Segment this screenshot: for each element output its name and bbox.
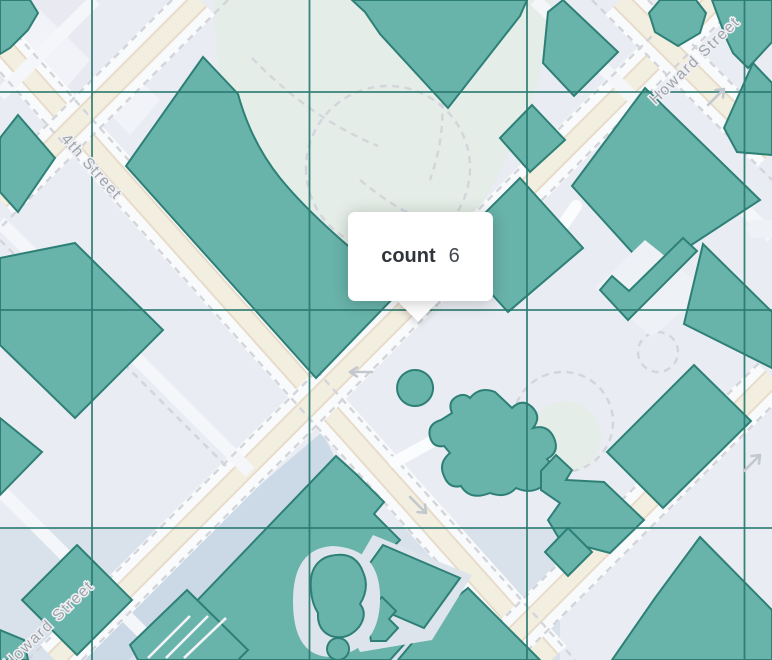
map-viewport[interactable]: 4th StreetHoward StreetHoward Street cou… [0, 0, 772, 660]
blob-bottom-circle[interactable] [327, 638, 349, 660]
tooltip-field-label: count [381, 245, 435, 268]
map-canvas[interactable]: 4th StreetHoward StreetHoward Street [0, 0, 772, 660]
tooltip: count 6 [348, 212, 493, 301]
blob-bottom[interactable] [311, 555, 366, 638]
tooltip-field-value: 6 [449, 245, 460, 268]
round-building[interactable] [397, 370, 433, 406]
